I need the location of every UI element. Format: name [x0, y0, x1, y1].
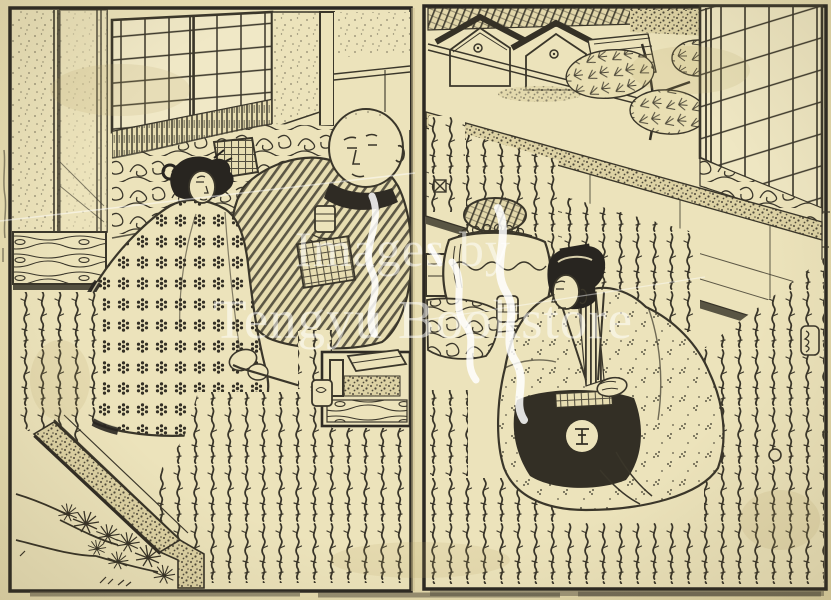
ash-cup: [312, 380, 332, 406]
bushes: [630, 10, 705, 36]
back-wall: [272, 12, 410, 130]
woodblock-print-scene: Images by Tengyu Bookstore: [0, 0, 831, 600]
folding-screen: [12, 10, 108, 290]
woodgrain-base: [13, 232, 106, 284]
corner-post: [320, 12, 334, 126]
watermark-line2: Tengyu Bookstore: [213, 289, 633, 350]
tobacco-tray-table: [312, 350, 410, 426]
label-cartouche: [801, 326, 819, 355]
bottom-edge-streak: [30, 591, 824, 596]
watermark-line1: Images by: [295, 221, 511, 277]
circle-marker-2: [769, 449, 781, 461]
ground: [498, 86, 582, 102]
book-spread-scan: Images by Tengyu Bookstore: [0, 0, 831, 600]
